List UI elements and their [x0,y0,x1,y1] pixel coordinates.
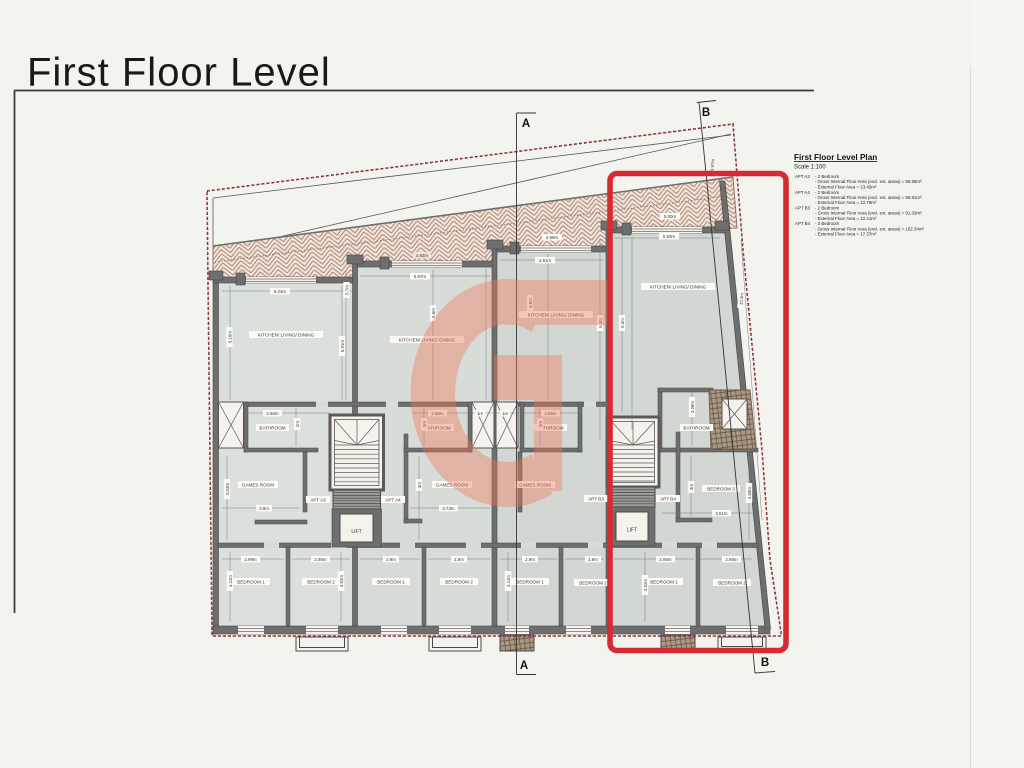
svg-text:2.9m: 2.9m [454,557,464,562]
svg-text:BEDROOM 2: BEDROOM 2 [718,580,746,585]
svg-text:4.92m: 4.92m [416,253,429,258]
svg-text:3.58m: 3.58m [747,487,752,500]
svg-text:BEDROOM 2: BEDROOM 2 [445,579,473,584]
svg-text:APT A4: APT A4 [385,497,401,502]
svg-text:2m: 2m [295,421,300,427]
svg-text:5.50m: 5.50m [663,234,676,239]
svg-text:BEDROOM 1: BEDROOM 1 [377,579,405,584]
svg-text:1m: 1m [477,411,483,416]
svg-text:3.52m: 3.52m [643,579,648,592]
svg-text:2.99m: 2.99m [244,557,257,562]
svg-text:2.66m: 2.66m [266,411,279,416]
svg-text:APT B3: APT B3 [588,496,604,501]
svg-text:2.9m: 2.9m [386,557,396,562]
svg-text:GAMES ROOM: GAMES ROOM [242,482,274,487]
svg-text:BEDROOM 3: BEDROOM 3 [707,486,735,491]
svg-text:BATHROOM: BATHROOM [683,425,709,430]
svg-text:2.9m: 2.9m [588,557,598,562]
svg-text:LIFT: LIFT [351,529,361,535]
svg-text:First Floor Level: First Floor Level [27,51,331,95]
svg-text:3.03m: 3.03m [225,483,230,496]
svg-text:KITCHEN/ LIVING/ DINING: KITCHEN/ LIVING/ DINING [650,284,707,289]
svg-text:BATHROOM: BATHROOM [259,425,285,430]
svg-text:3m: 3m [689,484,694,490]
svg-text:BEDROOM 1: BEDROOM 1 [237,579,265,584]
svg-text:2.95m: 2.95m [659,557,672,562]
svg-text:3.97m: 3.97m [710,158,716,171]
svg-text:BEDROOM 2: BEDROOM 2 [307,579,335,584]
svg-text:10.3m: 10.3m [739,292,745,305]
svg-text:APT A4: APT A4 [795,190,810,195]
svg-text:5.91m: 5.91m [340,340,345,353]
svg-text:B: B [761,657,769,669]
svg-text:APT B4: APT B4 [795,221,811,226]
svg-text:2.95m: 2.95m [314,557,327,562]
svg-text:5.7m: 5.7m [345,285,350,295]
svg-text:4.95m: 4.95m [546,235,559,240]
svg-text:6.24m: 6.24m [274,289,287,294]
svg-text:BEDROOM 1: BEDROOM 1 [516,579,544,584]
svg-text:B: B [702,107,710,119]
svg-text:2.9m: 2.9m [525,557,535,562]
svg-text:6.3m: 6.3m [620,318,625,328]
svg-text:5.16m: 5.16m [228,331,233,344]
svg-text:4.91m: 4.91m [539,258,552,263]
svg-text:3m: 3m [417,482,422,488]
svg-text:3.9m: 3.9m [259,506,269,511]
svg-text:3.28m: 3.28m [690,401,695,414]
svg-text:4.11m: 4.11m [228,575,233,587]
svg-text:APT B3: APT B3 [795,206,811,211]
svg-text:APT B4: APT B4 [660,496,676,501]
svg-text:3.52m: 3.52m [339,575,344,588]
svg-text:APT A3: APT A3 [310,497,326,502]
svg-text:4.11m: 4.11m [506,575,511,587]
svg-text:Scale 1:100: Scale 1:100 [794,165,826,171]
svg-text:- External Floor Area = 12.79m: - External Floor Area = 12.79m² [815,200,877,205]
svg-text:BEDROOM 2: BEDROOM 2 [579,580,607,585]
svg-text:LIFT: LIFT [627,528,637,534]
svg-text:APT A3: APT A3 [795,174,810,179]
svg-text:5.50m: 5.50m [664,214,677,219]
svg-text:1m: 1m [502,411,508,416]
svg-text:First Floor Level Plan: First Floor Level Plan [794,153,877,162]
svg-text:3.51m: 3.51m [715,511,728,516]
svg-text:3.73m: 3.73m [442,506,455,511]
svg-text:A: A [522,118,530,130]
svg-text:KITCHEN/ LIVING/ DINING: KITCHEN/ LIVING/ DINING [258,332,315,337]
svg-text:6.6m: 6.6m [431,308,436,318]
svg-text:- External Floor Area = 13.45m: - External Floor Area = 13.45m² [815,184,877,189]
svg-text:A: A [520,660,528,672]
svg-text:BEDROOM 1: BEDROOM 1 [650,579,678,584]
svg-text:2.86m: 2.86m [725,557,738,562]
svg-text:5.97m: 5.97m [414,274,427,279]
svg-text:- External Floor Area = 12.41m: - External Floor Area = 12.41m² [815,216,877,221]
svg-text:- External Floor Area = 17.37m: - External Floor Area = 17.37m² [815,232,877,237]
